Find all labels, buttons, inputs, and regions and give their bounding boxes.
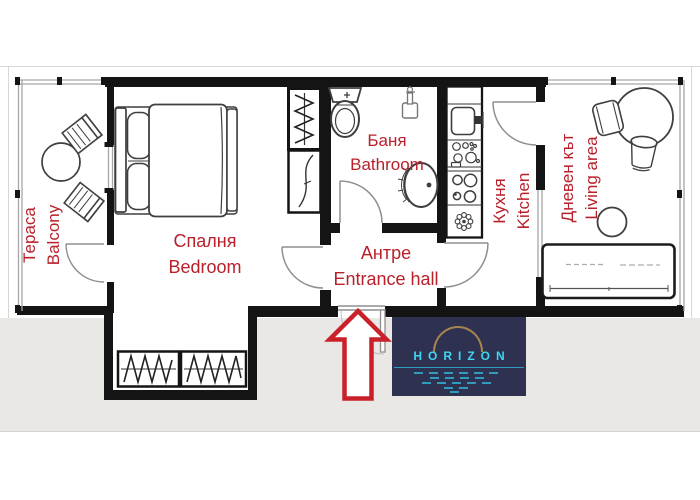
water-reflection-lines — [422, 382, 494, 384]
water-reflection-lines — [444, 387, 472, 389]
radiator-alcove-right — [181, 352, 246, 387]
bathroom-label-bg: Баня — [332, 129, 442, 153]
living-area-label: Дневен кът Living area — [556, 113, 604, 243]
balcony-label-bg: Тераса — [18, 178, 42, 292]
living-label-bg: Дневен кът — [556, 113, 580, 243]
balcony-chair-bottom — [64, 183, 104, 222]
water-heater — [403, 87, 418, 118]
bathroom-label: Баня Bathroom — [332, 129, 442, 177]
living-label-en: Living area — [580, 113, 604, 243]
bedroom-door — [282, 247, 323, 288]
floor-plan: Тераса Balcony Спалня Bedroom Баня Bathr… — [0, 0, 700, 500]
water-reflection-lines — [450, 391, 464, 393]
bed — [115, 105, 237, 217]
balcony-door — [66, 244, 104, 282]
entrance-label-en: Entrance hall — [321, 266, 451, 292]
sofa — [543, 245, 675, 299]
radiator-alcove-left — [118, 352, 179, 387]
bathroom-label-en: Bathroom — [332, 153, 442, 177]
bedroom-label-bg: Спалня — [145, 228, 265, 254]
entrance-arrow-icon — [330, 311, 387, 399]
water-reflection-lines — [414, 372, 502, 374]
wardrobe — [289, 151, 321, 213]
living-door — [493, 102, 536, 145]
dining-chair-bottom — [628, 135, 657, 172]
bathroom-door — [340, 181, 382, 223]
entrance-label-bg: Антре — [321, 240, 451, 266]
balcony-label: Тераса Balcony — [18, 178, 66, 292]
bedroom-label: Спалня Bedroom — [145, 228, 265, 280]
kitchen-label-en: Kitchen — [512, 141, 536, 261]
kitchen-label: Кухня Kitchen — [488, 141, 536, 261]
kitchen-counter — [447, 87, 484, 238]
radiator-vertical — [289, 89, 321, 150]
horizon-logo: HORIZON — [392, 317, 526, 396]
bedroom-label-en: Bedroom — [145, 254, 265, 280]
entrance-hall-label: Антре Entrance hall — [321, 240, 451, 292]
balcony-label-en: Balcony — [42, 178, 66, 292]
horizon-line — [394, 367, 524, 368]
kitchen-label-bg: Кухня — [488, 141, 512, 261]
horizon-logo-text: HORIZON — [392, 349, 526, 363]
water-reflection-lines — [430, 377, 490, 379]
